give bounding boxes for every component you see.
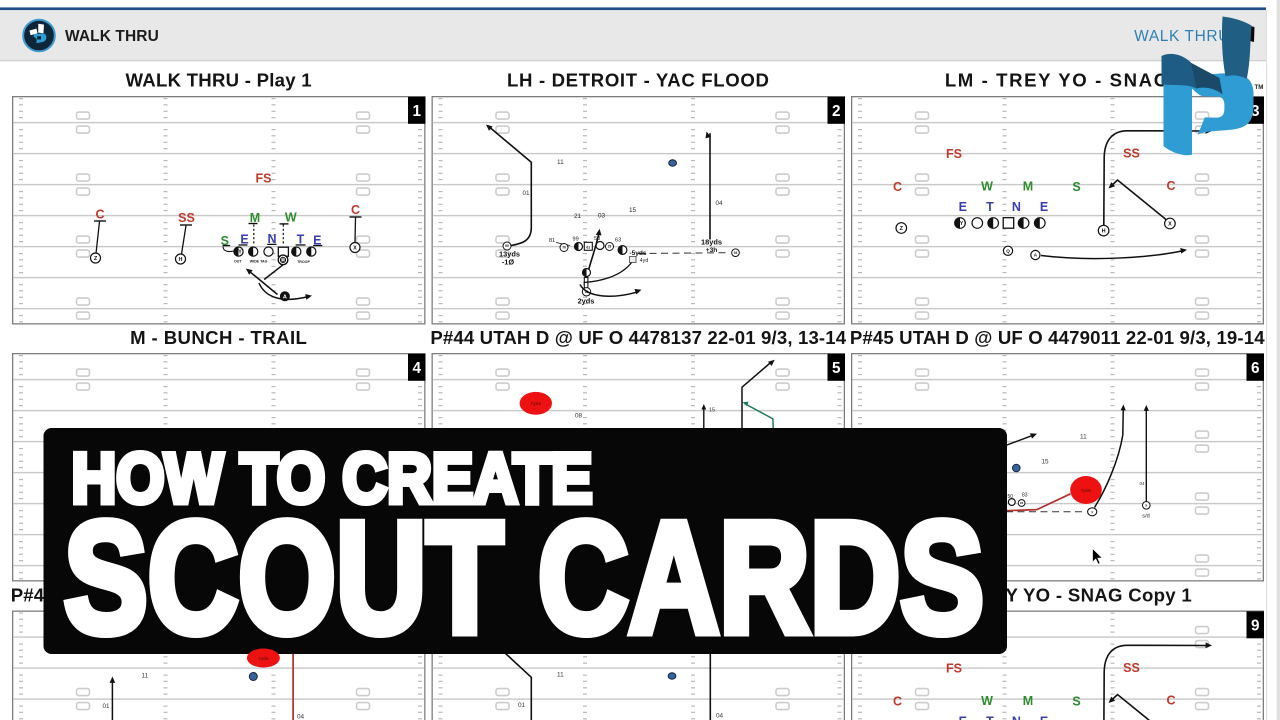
svg-text:SS: SS [1123,661,1140,675]
svg-text:04: 04 [297,714,305,720]
svg-text:M - BUNCH - TRAIL: M - BUNCH - TRAIL [130,327,307,348]
svg-text:C: C [351,203,360,217]
svg-text:FS: FS [256,172,272,186]
svg-text:E: E [1040,715,1048,720]
svg-text:11: 11 [557,159,564,166]
svg-text:15: 15 [629,207,637,214]
svg-text:M: M [1023,180,1033,194]
svg-text:99: 99 [573,237,579,243]
svg-text:E: E [959,200,967,214]
svg-text:26: 26 [1020,501,1024,505]
svg-text:LH - DETROIT - YAC FLOOD: LH - DETROIT - YAC FLOOD [507,70,769,91]
svg-text:WALK THRU: WALK THRU [65,28,159,45]
svg-text:W: W [981,180,993,194]
svg-text:OUT: OUT [234,260,242,264]
svg-text:11: 11 [142,673,149,680]
svg-text:03: 03 [734,251,738,255]
svg-text:4: 4 [413,360,422,377]
svg-text:C: C [893,695,902,709]
svg-text:4yd: 4yd [640,258,649,264]
svg-text:7yds: 7yds [258,656,269,661]
svg-text:C: C [95,208,104,222]
svg-text:63: 63 [615,238,621,244]
svg-text:C: C [893,180,902,194]
svg-text:TROOP: TROOP [297,260,310,264]
svg-text:S: S [1072,694,1080,708]
svg-text:03: 03 [598,213,606,220]
svg-text:04: 04 [716,713,724,720]
svg-text:2yds: 2yds [578,297,595,306]
svg-text:01: 01 [523,190,531,197]
svg-text:M: M [1023,694,1033,708]
svg-text:LM - TREY YO - SNAG: LM - TREY YO - SNAG [945,70,1170,91]
svg-text:00: 00 [505,244,509,248]
svg-text:01: 01 [103,703,111,710]
svg-text:7yds: 7yds [1081,488,1092,493]
svg-text:WALK THRU - Play 1: WALK THRU - Play 1 [126,70,312,91]
svg-text:x: x [1145,504,1147,508]
svg-text:S: S [1072,180,1080,194]
svg-text:H: H [179,257,183,263]
svg-text:N: N [1012,715,1021,720]
svg-text:Q: Q [1006,249,1010,254]
svg-text:SS: SS [1123,147,1140,161]
svg-text:X: X [353,246,357,252]
svg-text:5: 5 [832,360,841,377]
svg-text:15: 15 [709,408,715,414]
svg-text:TM: TM [1255,84,1264,91]
svg-text:1: 1 [413,103,422,120]
svg-text:WIDE TAG: WIDE TAG [250,260,268,264]
svg-text:P#44 UTAH D @ UF O 4478137 22-: P#44 UTAH D @ UF O 4478137 22-01 9/3, 13… [430,327,846,348]
svg-text:83: 83 [1022,493,1028,499]
svg-text:C: C [1166,179,1175,193]
svg-text:29: 29 [608,245,612,249]
svg-text:04: 04 [716,200,724,207]
svg-text:W: W [285,211,297,225]
svg-text:18yds: 18yds [701,238,722,247]
svg-text:11: 11 [1080,434,1087,441]
svg-text:-5yds: -5yds [629,250,647,257]
svg-text:61: 61 [586,246,590,250]
svg-text:E: E [1040,200,1048,214]
svg-text:15: 15 [1042,459,1050,466]
svg-text:81: 81 [549,238,555,244]
svg-text:W: W [981,694,993,708]
svg-text:s/d: s/d [1142,514,1149,520]
svg-text:-1Ø: -1Ø [502,258,515,267]
svg-text:H: H [1102,229,1106,235]
svg-text:SS: SS [178,211,195,225]
svg-text:08: 08 [575,413,583,420]
svg-text:P#45 UTAH D @ UF O 4479011 22-: P#45 UTAH D @ UF O 4479011 22-01 9/3, 19… [850,327,1265,348]
svg-text:6: 6 [1251,360,1260,377]
svg-text:WALK THRU: WALK THRU [1134,28,1230,45]
svg-text:11: 11 [557,672,564,679]
svg-text:T: T [986,200,994,214]
svg-text:9: 9 [1251,617,1260,634]
svg-text:N: N [1012,200,1021,214]
svg-text:7yds: 7yds [531,401,542,406]
svg-text:E: E [959,715,967,720]
svg-text:01: 01 [518,702,526,709]
svg-text:FS: FS [946,147,962,161]
svg-text:Q: Q [281,258,285,263]
svg-text:C: C [1166,694,1175,708]
svg-text:04: 04 [1140,481,1146,486]
svg-text:21: 21 [574,213,582,220]
svg-text:76: 76 [562,246,566,250]
svg-text:T: T [986,715,994,720]
svg-text:2: 2 [832,103,841,120]
svg-text:SCOUT CARDS: SCOUT CARDS [64,490,984,666]
svg-text:X: X [1168,222,1172,228]
svg-text:50: 50 [1008,494,1014,500]
